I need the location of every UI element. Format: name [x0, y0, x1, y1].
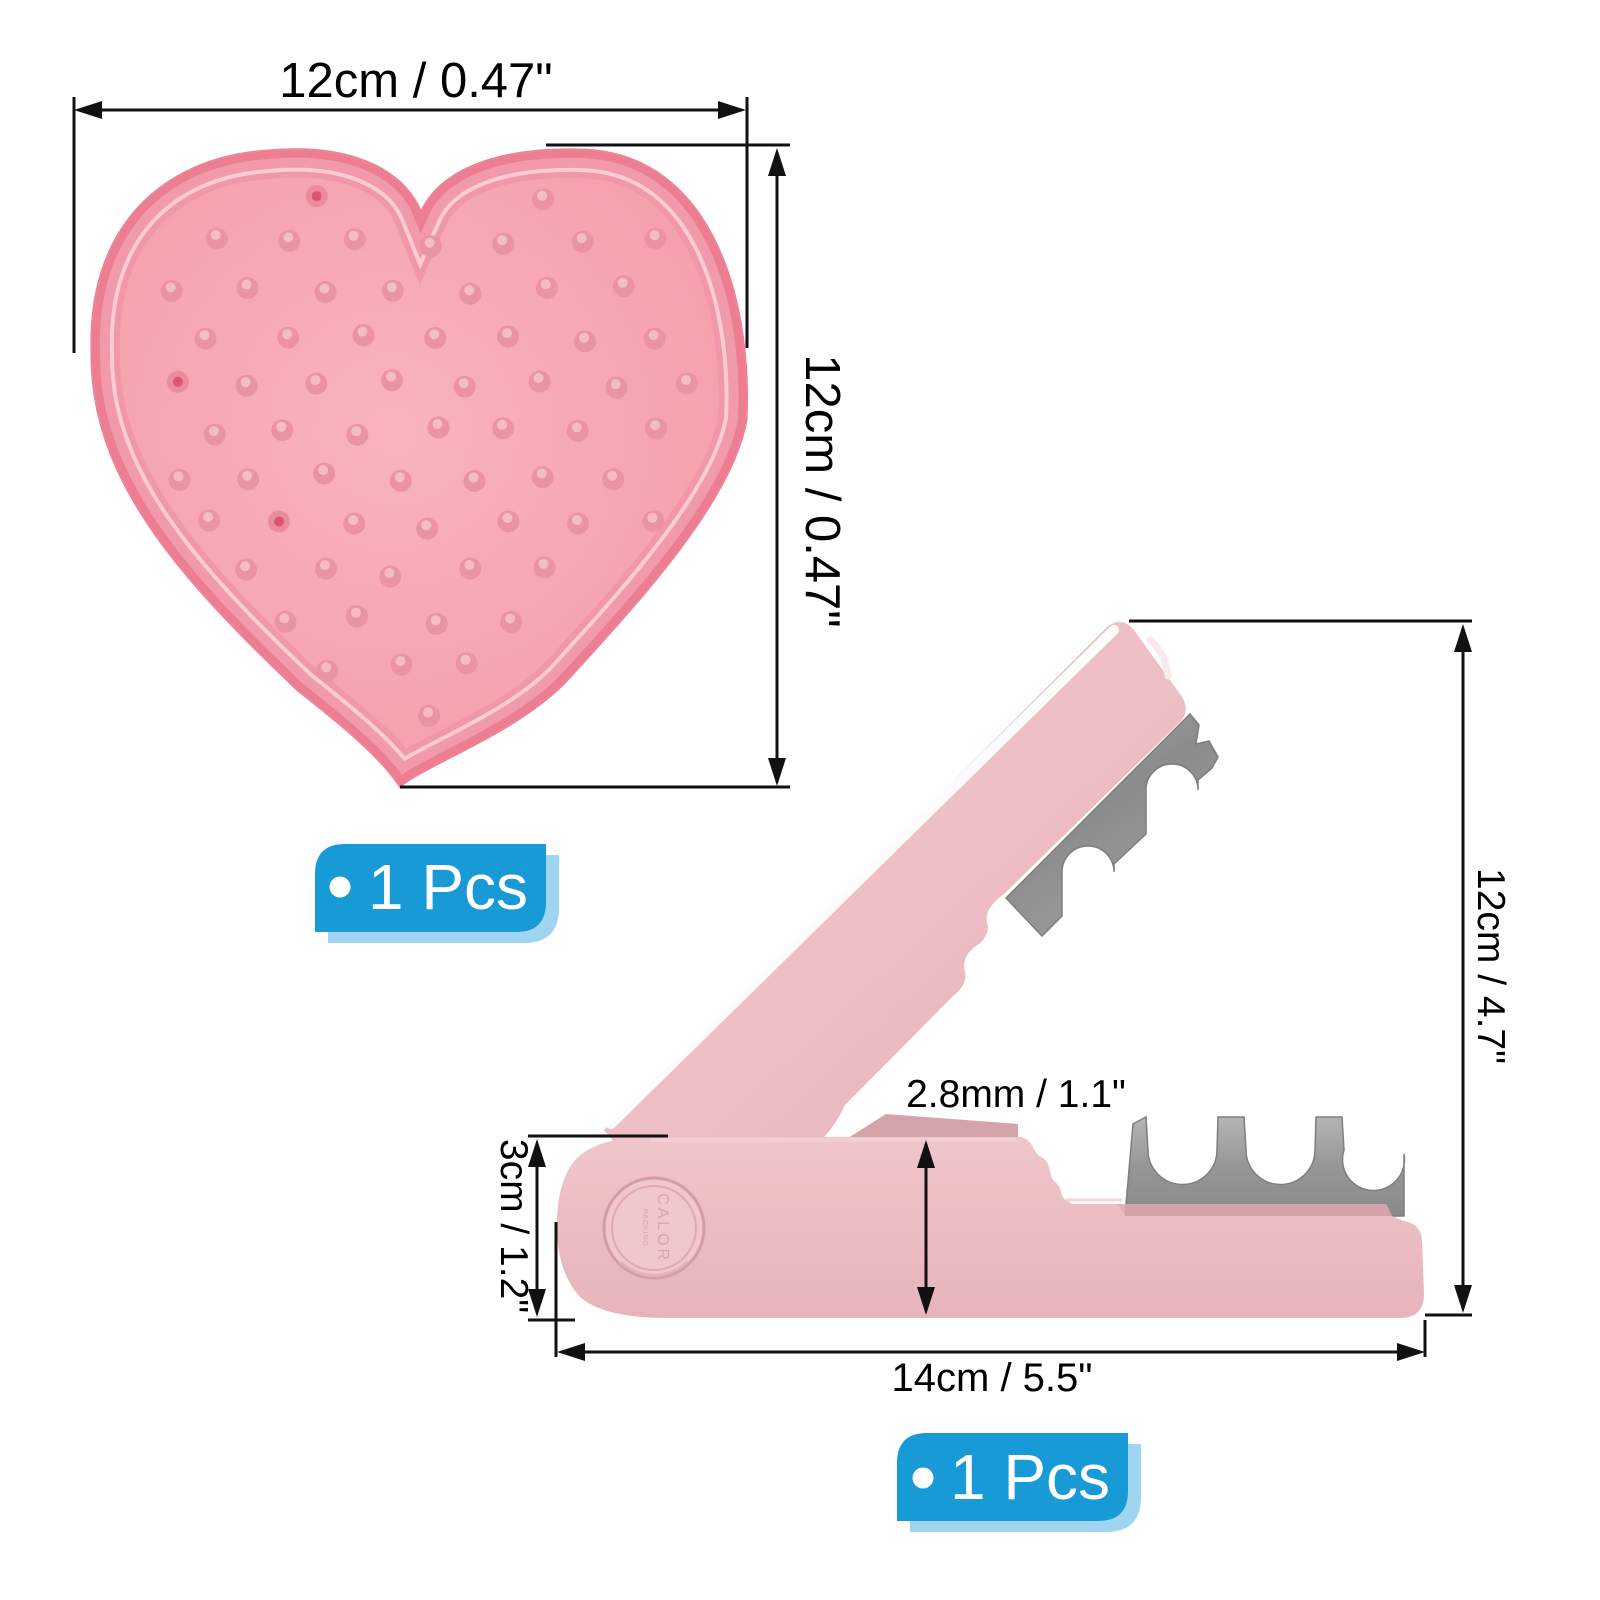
svg-text:CALOR: CALOR [654, 1193, 671, 1263]
svg-text:3cm / 1.2": 3cm / 1.2" [492, 1139, 535, 1313]
svg-text:12cm / 4.7": 12cm / 4.7" [1469, 868, 1512, 1064]
svg-text:PACKING: PACKING [641, 1209, 648, 1247]
svg-text:12cm / 0.47": 12cm / 0.47" [279, 54, 552, 108]
svg-text:14cm / 5.5": 14cm / 5.5" [892, 1356, 1093, 1400]
svg-text:1 Pcs: 1 Pcs [368, 851, 528, 923]
svg-text:1 Pcs: 1 Pcs [950, 1441, 1110, 1513]
svg-text:2.8mm / 1.1": 2.8mm / 1.1" [906, 1073, 1126, 1116]
svg-text:12cm / 0.47": 12cm / 0.47" [795, 354, 849, 627]
